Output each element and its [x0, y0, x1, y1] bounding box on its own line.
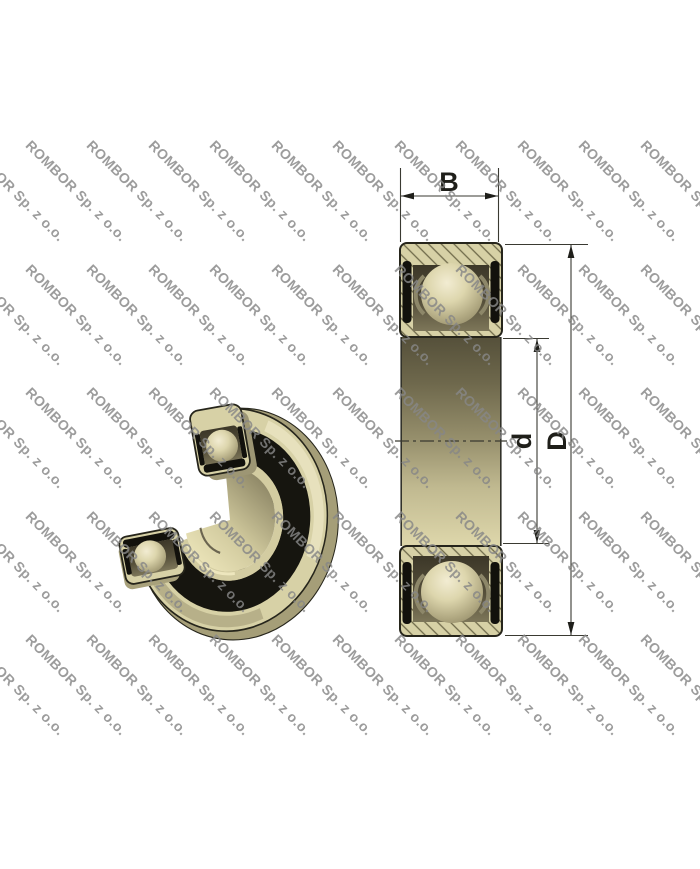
bearing-3d-view	[116, 397, 353, 654]
bearing-ball	[421, 263, 483, 325]
dim-label-width: B	[439, 167, 459, 197]
bearing-cross-section	[395, 243, 507, 636]
dim-label-outer-diameter: D	[542, 431, 572, 451]
bearing-ball	[421, 561, 483, 623]
bearing-product-image: B d D ROMBOR Sp. z o.o.ROMBOR Sp. z o.o.…	[0, 0, 700, 869]
seal-left	[403, 261, 412, 323]
seal-left	[403, 562, 412, 624]
seal-right	[491, 562, 500, 624]
bearing-technical-drawing: B d D	[0, 0, 700, 869]
dim-label-bore-diameter: d	[507, 433, 537, 450]
ring-section-top	[400, 243, 502, 337]
ring-section-bottom	[400, 546, 502, 636]
seal-right	[491, 261, 500, 323]
